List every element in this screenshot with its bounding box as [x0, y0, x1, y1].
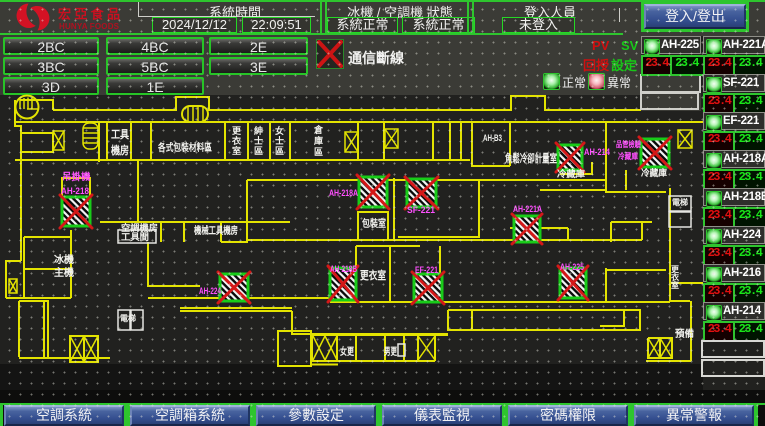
svg-text:主機: 主機: [54, 266, 74, 279]
svg-text:SF-221: SF-221: [407, 205, 436, 216]
svg-text:品管檢驗: 品管檢驗: [616, 139, 641, 149]
svg-text:包裝室: 包裝室: [362, 217, 386, 230]
svg-text:AH-221A: AH-221A: [513, 204, 542, 215]
svg-text:AH-214: AH-214: [584, 147, 611, 158]
svg-text:冷藏庫: 冷藏庫: [618, 151, 638, 161]
svg-text:機房: 機房: [111, 143, 129, 157]
svg-text:冷藏庫: 冷藏庫: [641, 167, 667, 178]
svg-text:AH-B3: AH-B3: [483, 133, 502, 143]
svg-text:AH-225: AH-225: [560, 262, 585, 273]
svg-text:AH-218: AH-218: [61, 186, 89, 197]
svg-text:AH-218B: AH-218B: [330, 264, 357, 275]
svg-text:各式包裝材料區: 各式包裝材料區: [157, 141, 212, 154]
svg-text:EF-221: EF-221: [415, 265, 439, 276]
svg-text:AH-218A: AH-218A: [329, 188, 358, 199]
svg-text:紳士區: 紳士區: [254, 125, 263, 156]
svg-text:女士區: 女士區: [275, 125, 284, 156]
svg-text:冰機: 冰機: [54, 253, 74, 266]
svg-text:冷藏庫: 冷藏庫: [557, 168, 585, 179]
svg-text:電梯: 電梯: [672, 197, 688, 207]
svg-text:工具間: 工具間: [121, 232, 149, 242]
svg-text:吊掛機: 吊掛機: [62, 171, 91, 183]
svg-text:更衣室: 更衣室: [360, 268, 386, 282]
svg-text:電梯: 電梯: [120, 313, 136, 323]
svg-text:倉庫區: 倉庫區: [313, 124, 324, 157]
svg-text:預備: 預備: [675, 328, 695, 340]
svg-text:更衣室: 更衣室: [232, 126, 242, 156]
svg-text:機械工具機房: 機械工具機房: [194, 224, 238, 237]
svg-text:更衣室: 更衣室: [671, 264, 680, 290]
svg-text:女更: 女更: [340, 345, 355, 358]
svg-text:男更: 男更: [384, 346, 398, 358]
svg-text:AH-224: AH-224: [199, 286, 221, 297]
svg-text:魚鬆冷卻計量室: 魚鬆冷卻計量室: [505, 151, 557, 165]
svg-text:工具: 工具: [111, 128, 129, 141]
